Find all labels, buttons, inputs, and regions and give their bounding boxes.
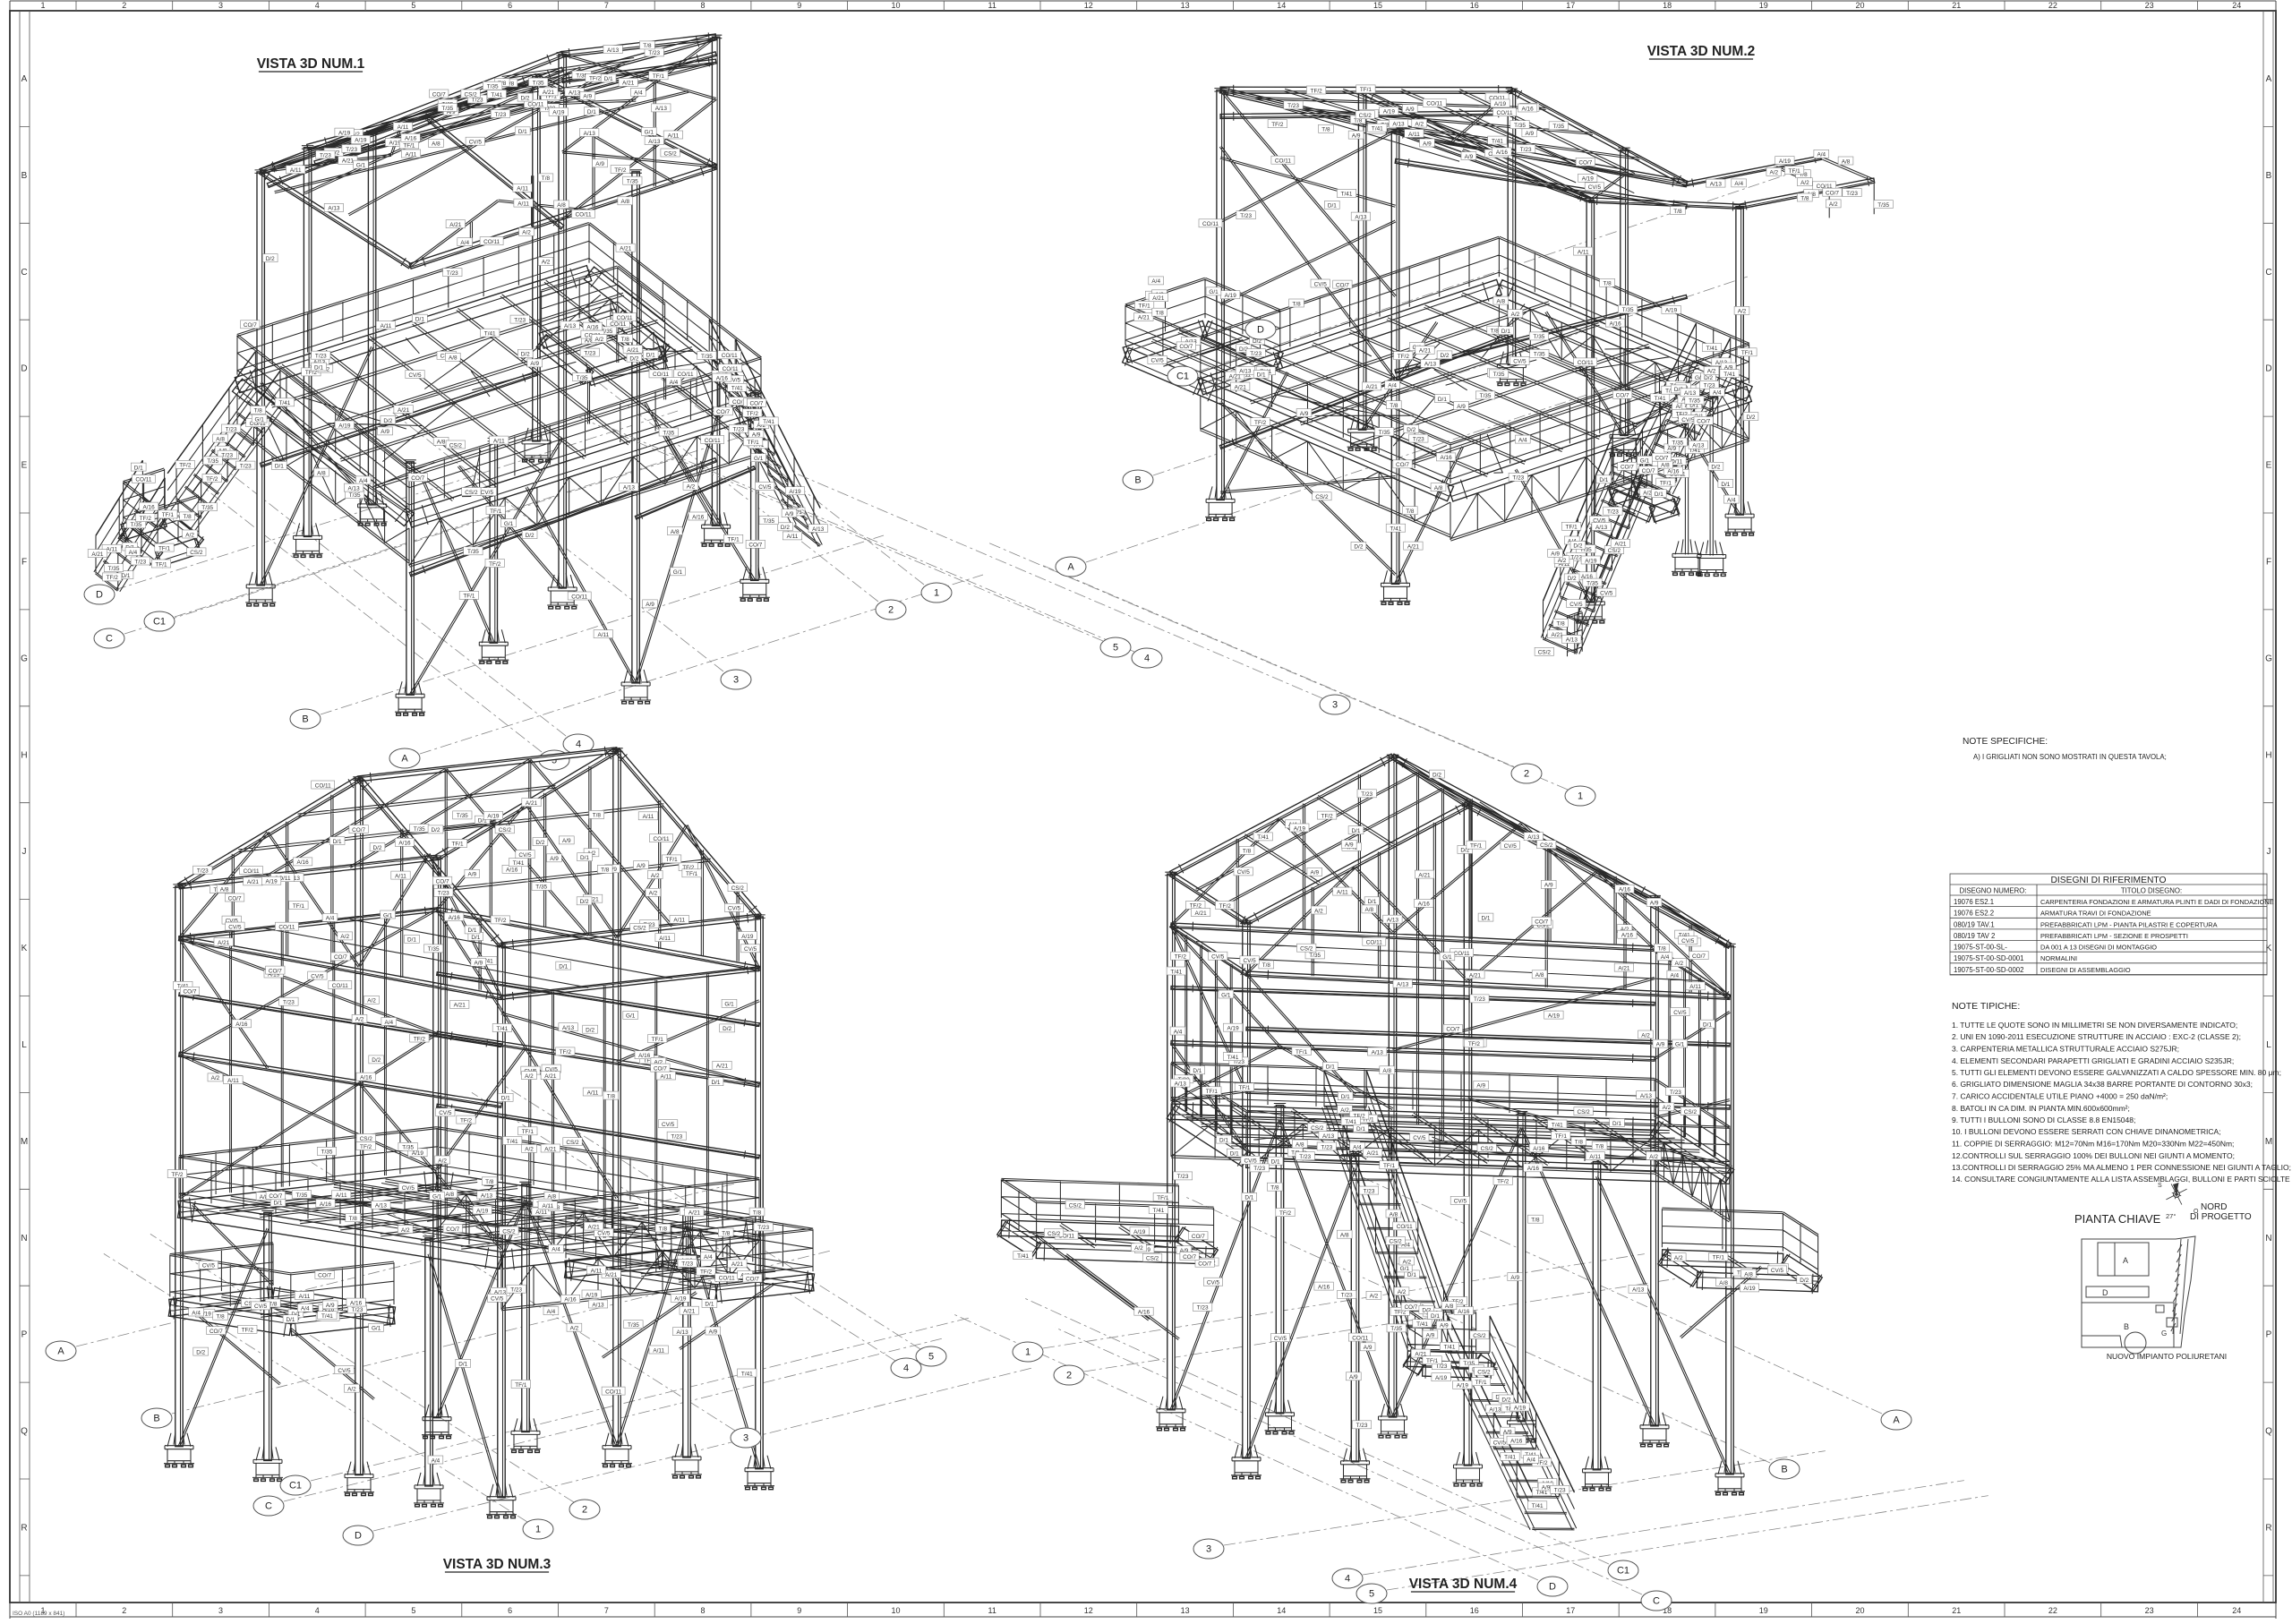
svg-text:CS/2: CS/2	[1538, 650, 1552, 656]
svg-text:A/16: A/16	[1621, 933, 1634, 939]
svg-text:T/8: T/8	[607, 1093, 616, 1099]
svg-text:A/8: A/8	[557, 202, 566, 209]
svg-text:A/2: A/2	[347, 1387, 356, 1393]
svg-text:7: 7	[604, 1, 609, 10]
svg-text:CS/2: CS/2	[566, 1140, 579, 1146]
svg-text:A: A	[21, 74, 28, 84]
svg-text:T/23: T/23	[1670, 1090, 1681, 1096]
svg-text:D/2: D/2	[1407, 427, 1415, 433]
svg-text:A/8: A/8	[317, 470, 326, 476]
svg-text:A/2: A/2	[1415, 121, 1424, 127]
svg-text:A/21: A/21	[398, 407, 410, 414]
svg-text:B: B	[2266, 171, 2272, 181]
svg-text:D/2: D/2	[586, 1028, 594, 1034]
svg-text:TF/2: TF/2	[140, 516, 152, 522]
svg-text:T/8: T/8	[1603, 281, 1612, 287]
svg-text:CO/11: CO/11	[1352, 1335, 1368, 1341]
svg-text:A/13: A/13	[1566, 637, 1578, 644]
svg-text:T/8: T/8	[183, 514, 192, 520]
svg-text:D/1: D/1	[501, 1096, 510, 1102]
svg-text:D/1: D/1	[407, 937, 416, 944]
svg-text:A/13: A/13	[1595, 525, 1608, 531]
svg-text:TF/1: TF/1	[293, 903, 305, 910]
svg-text:T/23: T/23	[315, 354, 327, 360]
svg-text:A/13: A/13	[812, 526, 825, 533]
svg-text:A/9: A/9	[1423, 141, 1432, 147]
svg-text:A/21: A/21	[218, 940, 230, 946]
svg-text:H: H	[2265, 750, 2271, 760]
svg-text:E: E	[2266, 461, 2272, 471]
svg-text:CS/2: CS/2	[190, 550, 203, 556]
svg-text:G/1: G/1	[724, 1002, 734, 1008]
svg-text:CO/7: CO/7	[1446, 1027, 1459, 1033]
svg-text:2: 2	[582, 1505, 587, 1516]
svg-text:D/2: D/2	[432, 827, 440, 833]
svg-text:A/16: A/16	[1441, 455, 1453, 461]
svg-text:A/9: A/9	[1476, 1083, 1485, 1090]
svg-text:T/23: T/23	[1607, 509, 1619, 516]
svg-text:A/8: A/8	[1365, 907, 1374, 913]
svg-text:24: 24	[2232, 1, 2241, 10]
svg-text:5: 5	[411, 1, 415, 10]
svg-text:TF/2: TF/2	[700, 1269, 713, 1276]
svg-text:A: A	[2123, 1256, 2128, 1265]
svg-text:A/19: A/19	[1585, 558, 1597, 564]
svg-text:J: J	[2267, 847, 2271, 857]
svg-text:D/2: D/2	[1800, 1278, 1809, 1284]
svg-text:19075-ST-00-SD-0002: 19075-ST-00-SD-0002	[1954, 966, 2023, 974]
svg-text:CV/5: CV/5	[1569, 602, 1583, 608]
svg-text:A/21: A/21	[1195, 910, 1208, 917]
svg-text:A/2: A/2	[1403, 1259, 1412, 1265]
svg-text:2: 2	[1066, 1371, 1072, 1381]
svg-text:A/8: A/8	[1382, 1068, 1391, 1074]
svg-text:A/9: A/9	[326, 1303, 335, 1309]
svg-text:D: D	[2265, 364, 2271, 374]
svg-text:A/2: A/2	[1663, 1105, 1672, 1111]
svg-text:CO/11: CO/11	[654, 836, 670, 842]
svg-text:A/19: A/19	[412, 1150, 424, 1157]
svg-text:M: M	[21, 1137, 28, 1147]
svg-text:4: 4	[315, 1606, 320, 1615]
svg-text:A/2: A/2	[522, 230, 531, 236]
svg-text:T/8: T/8	[601, 868, 610, 874]
svg-text:A/13: A/13	[375, 1203, 388, 1209]
svg-text:ARMATURA TRAVI DI FONDAZIONE: ARMATURA TRAVI DI FONDAZIONE	[2040, 910, 2151, 918]
svg-text:TF/2: TF/2	[179, 463, 192, 469]
svg-text:T/23: T/23	[1321, 1144, 1332, 1150]
svg-text:A/11: A/11	[406, 151, 417, 158]
svg-text:T/8: T/8	[542, 175, 551, 182]
svg-text:A/4: A/4	[1671, 972, 1680, 979]
svg-text:CV/5: CV/5	[1771, 1268, 1784, 1274]
svg-text:CS/2: CS/2	[633, 926, 646, 932]
svg-text:T/35: T/35	[467, 549, 479, 555]
svg-text:T/23: T/23	[1299, 1154, 1311, 1160]
svg-text:CV/5: CV/5	[1513, 359, 1527, 365]
svg-text:A/11: A/11	[517, 201, 529, 207]
svg-text:TF/1: TF/1	[666, 857, 679, 863]
svg-text:CS/2: CS/2	[663, 150, 677, 157]
svg-text:T/8: T/8	[722, 1230, 731, 1236]
svg-text:TF/2: TF/2	[360, 1144, 372, 1150]
svg-text:D/2: D/2	[1501, 1397, 1510, 1403]
svg-text:T/35: T/35	[1622, 307, 1634, 313]
svg-text:D/2: D/2	[1704, 375, 1713, 381]
svg-text:14: 14	[1277, 1606, 1286, 1615]
svg-text:17: 17	[1566, 1, 1575, 10]
svg-text:A/11: A/11	[653, 1347, 664, 1354]
svg-text:A/2: A/2	[687, 484, 696, 491]
svg-text:T/23: T/23	[648, 50, 660, 56]
svg-text:11. COPPIE DI SERRAGGIO: M12=7: 11. COPPIE DI SERRAGGIO: M12=70Nm M16=17…	[1952, 1140, 2234, 1149]
svg-text:A/9: A/9	[709, 1329, 718, 1335]
svg-text:6. GRIGLIATO DIMENSIONE MAGLIA: 6. GRIGLIATO DIMENSIONE MAGLIA 34x38 BAR…	[1952, 1080, 2253, 1089]
svg-text:CO/11: CO/11	[527, 102, 543, 108]
svg-text:S: S	[2158, 1183, 2162, 1189]
svg-text:A/2: A/2	[525, 1147, 534, 1153]
svg-text:A/11: A/11	[643, 814, 654, 820]
svg-text:G/1: G/1	[626, 1013, 636, 1020]
svg-text:A/21: A/21	[688, 1210, 701, 1217]
svg-text:A/11: A/11	[668, 132, 680, 139]
svg-text:T/23: T/23	[495, 112, 507, 118]
svg-text:T/41: T/41	[731, 386, 743, 392]
svg-text:T/41: T/41	[1341, 192, 1353, 198]
svg-text:A/11: A/11	[660, 1073, 671, 1080]
svg-text:A/9: A/9	[1349, 1374, 1358, 1380]
svg-text:D/1: D/1	[1482, 915, 1491, 921]
svg-text:T/41: T/41	[763, 419, 774, 425]
svg-text:T/8: T/8	[1321, 127, 1330, 133]
svg-text:CO/7: CO/7	[1616, 393, 1629, 399]
svg-text:A/19: A/19	[586, 1292, 598, 1298]
svg-text:3. CARPENTERIA METALLICA STRUT: 3. CARPENTERIA METALLICA STRUTTURALE ACC…	[1952, 1045, 2179, 1054]
svg-text:G: G	[21, 654, 28, 663]
svg-text:C1: C1	[289, 1481, 302, 1492]
svg-text:A/11: A/11	[1578, 249, 1589, 255]
svg-text:23: 23	[2145, 1, 2154, 10]
svg-text:A/21: A/21	[1366, 384, 1379, 390]
svg-text:T/41: T/41	[497, 1026, 509, 1032]
svg-text:DA 001 A 13 DISEGNI DI MONTAGG: DA 001 A 13 DISEGNI DI MONTAGGIO	[2040, 944, 2157, 952]
svg-text:TF/2: TF/2	[494, 918, 507, 924]
svg-text:T/41: T/41	[1552, 1122, 1563, 1128]
svg-text:A/11: A/11	[299, 1294, 311, 1300]
svg-text:19075-ST-00-SD-0001: 19075-ST-00-SD-0001	[1954, 954, 2023, 962]
svg-text:T/23: T/23	[1197, 1305, 1209, 1312]
svg-text:CO/7: CO/7	[1179, 344, 1193, 350]
svg-text:VISTA 3D NUM.1: VISTA 3D NUM.1	[257, 56, 365, 72]
svg-text:A/11: A/11	[535, 1209, 547, 1216]
svg-text:DISEGNI DI ASSEMBLAGGIO: DISEGNI DI ASSEMBLAGGIO	[2040, 966, 2131, 974]
svg-text:CO/11: CO/11	[723, 366, 739, 372]
svg-text:3: 3	[743, 1433, 748, 1444]
svg-text:CS/2: CS/2	[465, 490, 478, 496]
svg-text:A/13: A/13	[1489, 1406, 1501, 1413]
svg-text:CO/11: CO/11	[1397, 1224, 1413, 1230]
svg-text:T/35: T/35	[1586, 580, 1598, 586]
svg-text:T/23: T/23	[1240, 213, 1252, 219]
svg-text:T/23: T/23	[1520, 147, 1532, 153]
svg-text:TF/2: TF/2	[589, 76, 602, 82]
svg-text:CV/5: CV/5	[597, 1231, 611, 1237]
svg-text:A/16: A/16	[1522, 106, 1535, 112]
svg-text:A/11: A/11	[659, 936, 671, 942]
svg-text:10. I BULLONI DEVONO ESSERE SE: 10. I BULLONI DEVONO ESSERE SERRATI CON …	[1952, 1127, 2221, 1136]
svg-text:T/23: T/23	[510, 1287, 522, 1294]
svg-text:8: 8	[700, 1606, 705, 1615]
svg-text:A/2: A/2	[1643, 491, 1652, 497]
svg-text:CV/5: CV/5	[439, 1110, 452, 1116]
svg-text:TF/2: TF/2	[614, 167, 627, 174]
svg-text:D/1: D/1	[587, 109, 596, 115]
svg-text:A/2: A/2	[1800, 180, 1809, 186]
svg-text:T/41: T/41	[1372, 126, 1383, 132]
svg-text:A/8: A/8	[1535, 972, 1544, 979]
svg-text:3: 3	[1206, 1544, 1211, 1555]
svg-text:A/13: A/13	[1397, 982, 1409, 988]
svg-text:A/2: A/2	[1340, 1107, 1349, 1114]
svg-text:A/19: A/19	[1294, 825, 1306, 832]
svg-text:D/2: D/2	[781, 525, 790, 531]
svg-text:D/2: D/2	[1747, 415, 1756, 421]
svg-text:CV/5: CV/5	[1504, 843, 1518, 850]
svg-text:6: 6	[508, 1, 512, 10]
svg-text:D/2: D/2	[1573, 543, 1582, 550]
svg-text:CO/7: CO/7	[210, 1329, 223, 1335]
svg-text:A/4: A/4	[1174, 1029, 1183, 1035]
svg-text:A/9: A/9	[1551, 551, 1560, 558]
svg-text:T/8: T/8	[643, 43, 652, 49]
svg-text:D/1: D/1	[646, 353, 655, 359]
svg-text:C1: C1	[1176, 372, 1189, 382]
svg-text:A/13: A/13	[564, 323, 577, 329]
svg-text:D/1: D/1	[286, 1317, 295, 1323]
svg-text:CV/5: CV/5	[1237, 869, 1251, 876]
svg-text:TF/1: TF/1	[1789, 168, 1801, 175]
svg-text:TF/1: TF/1	[1713, 1255, 1725, 1261]
svg-text:A/21: A/21	[91, 551, 104, 558]
svg-text:A/16: A/16	[692, 514, 705, 520]
svg-text:A: A	[57, 1346, 64, 1357]
svg-text:A/2: A/2	[542, 260, 551, 266]
svg-text:CS/2: CS/2	[1477, 1370, 1491, 1376]
svg-text:A/11: A/11	[381, 323, 392, 329]
svg-text:A/8: A/8	[1390, 1211, 1398, 1218]
svg-text:A/8: A/8	[1445, 1303, 1454, 1310]
svg-text:C: C	[21, 268, 27, 278]
svg-text:14: 14	[1277, 1, 1286, 10]
svg-text:T/41: T/41	[491, 92, 502, 98]
svg-text:A/8: A/8	[1497, 298, 1506, 304]
svg-text:A/21: A/21	[544, 1146, 557, 1152]
svg-text:G/1: G/1	[1640, 458, 1650, 465]
svg-text:T/35: T/35	[535, 885, 547, 891]
svg-text:A/11: A/11	[1408, 132, 1420, 138]
svg-text:CO/11: CO/11	[483, 239, 500, 245]
svg-text:K: K	[21, 944, 28, 953]
svg-text:T/23: T/23	[1287, 103, 1299, 109]
svg-text:T/41: T/41	[279, 400, 291, 406]
svg-text:2: 2	[122, 1606, 126, 1615]
svg-text:D/1: D/1	[1219, 1137, 1228, 1143]
svg-text:TF/2: TF/2	[1497, 1179, 1509, 1185]
svg-text:A/2: A/2	[211, 1075, 220, 1081]
svg-text:CV/5: CV/5	[1681, 938, 1695, 944]
svg-text:A/21: A/21	[716, 1064, 729, 1070]
svg-text:A/8: A/8	[446, 1192, 455, 1198]
svg-text:T/23: T/23	[1341, 1293, 1353, 1299]
svg-text:CV/5: CV/5	[1243, 958, 1256, 964]
svg-text:T/41: T/41	[1532, 1503, 1544, 1509]
svg-text:10: 10	[891, 1606, 900, 1615]
svg-text:3: 3	[218, 1, 223, 10]
svg-text:T/8: T/8	[1270, 1185, 1279, 1192]
svg-text:A/9: A/9	[646, 602, 654, 608]
svg-text:A/9: A/9	[550, 856, 559, 862]
svg-text:A: A	[1893, 1415, 1900, 1426]
svg-text:T/35: T/35	[1877, 202, 1889, 209]
svg-text:B: B	[1134, 475, 1141, 486]
svg-text:D/1: D/1	[712, 1080, 721, 1086]
svg-text:A/11: A/11	[106, 547, 117, 553]
svg-text:A/2: A/2	[401, 1227, 410, 1234]
svg-text:D/2: D/2	[521, 95, 530, 101]
svg-text:A/2: A/2	[1738, 309, 1747, 315]
svg-text:A/4: A/4	[547, 1309, 556, 1315]
svg-text:G/1: G/1	[1442, 954, 1452, 961]
svg-text:A/8: A/8	[621, 199, 630, 205]
svg-text:A/11: A/11	[1337, 889, 1348, 895]
svg-text:P: P	[21, 1330, 28, 1340]
svg-text:A/21: A/21	[731, 1261, 744, 1268]
svg-text:T/8: T/8	[1531, 1218, 1540, 1224]
svg-text:A/8: A/8	[1661, 462, 1670, 468]
svg-text:A/4: A/4	[326, 916, 335, 922]
svg-text:T/41: T/41	[1416, 1321, 1428, 1328]
svg-text:G/1: G/1	[372, 1326, 381, 1332]
svg-text:NOTE TIPICHE:: NOTE TIPICHE:	[1952, 1001, 2020, 1012]
svg-text:A/4: A/4	[460, 240, 469, 246]
svg-text:T/35: T/35	[1689, 398, 1700, 405]
svg-text:CS/2: CS/2	[1684, 1109, 1698, 1115]
svg-text:A/16: A/16	[716, 375, 729, 381]
svg-text:CS/2: CS/2	[1608, 548, 1621, 554]
svg-text:A/4: A/4	[1713, 390, 1722, 397]
svg-text:A/8: A/8	[1744, 1271, 1753, 1278]
svg-text:T/35: T/35	[201, 505, 213, 511]
svg-text:T/35: T/35	[349, 492, 361, 499]
svg-text:A/13: A/13	[1692, 443, 1705, 449]
svg-text:D/2: D/2	[521, 352, 530, 358]
svg-text:23: 23	[2145, 1606, 2154, 1615]
svg-text:D/2: D/2	[1441, 353, 1450, 359]
svg-text:16: 16	[1470, 1, 1479, 10]
svg-text:TF/2: TF/2	[1271, 122, 1284, 128]
svg-text:T/23: T/23	[1177, 1174, 1189, 1180]
svg-text:A/19: A/19	[1457, 1383, 1469, 1389]
svg-text:TF/2: TF/2	[1279, 1210, 1292, 1217]
svg-text:A/16: A/16	[1667, 469, 1680, 475]
svg-text:A/11: A/11	[597, 632, 609, 638]
svg-text:27°: 27°	[2166, 1212, 2176, 1220]
svg-text:CO/7: CO/7	[1655, 456, 1669, 462]
svg-text:G/1: G/1	[255, 416, 265, 423]
svg-text:CO/11: CO/11	[1275, 158, 1291, 165]
svg-text:A/13: A/13	[1632, 1287, 1645, 1294]
svg-text:T/41: T/41	[1227, 1055, 1239, 1061]
svg-text:D/1: D/1	[1612, 1121, 1621, 1127]
svg-text:5: 5	[1369, 1589, 1374, 1600]
svg-text:T/41: T/41	[1257, 834, 1269, 841]
svg-text:A/21: A/21	[1552, 632, 1564, 638]
svg-text:A/21: A/21	[622, 81, 635, 87]
svg-text:A/13: A/13	[623, 485, 636, 491]
svg-text:A/13: A/13	[1392, 122, 1405, 128]
svg-text:D/2: D/2	[580, 899, 589, 905]
svg-text:CO/11: CO/11	[332, 983, 348, 989]
svg-text:T/23: T/23	[226, 426, 237, 432]
svg-text:NUOVO IMPIANTO POLIURETANI: NUOVO IMPIANTO POLIURETANI	[2107, 1352, 2227, 1361]
svg-text:4: 4	[315, 1, 320, 10]
svg-text:A/21: A/21	[1367, 1150, 1380, 1157]
svg-text:T/23: T/23	[447, 270, 458, 277]
svg-text:A/21: A/21	[1614, 542, 1627, 548]
svg-text:A/2: A/2	[355, 1017, 364, 1023]
svg-text:A/9: A/9	[1656, 1042, 1665, 1048]
svg-text:CO/7: CO/7	[1826, 191, 1839, 197]
svg-text:A/2: A/2	[1707, 369, 1716, 375]
svg-text:TF/1: TF/1	[155, 561, 167, 568]
svg-text:T/35: T/35	[108, 566, 120, 572]
svg-text:D/1: D/1	[1655, 491, 1663, 498]
svg-text:A/21: A/21	[1469, 972, 1482, 979]
svg-text:A/9: A/9	[1542, 1484, 1551, 1491]
svg-text:D/1: D/1	[1721, 482, 1730, 488]
svg-text:8. BATOLI IN CA DIM. IN PIANTA: 8. BATOLI IN CA DIM. IN PIANTA MIN.600x6…	[1952, 1104, 2130, 1113]
svg-text:A/13: A/13	[1372, 1049, 1384, 1056]
svg-text:A/9: A/9	[562, 838, 571, 844]
svg-text:CO/7: CO/7	[1336, 282, 1349, 288]
svg-text:A/9: A/9	[1426, 1332, 1435, 1338]
svg-text:CV/5: CV/5	[518, 852, 532, 859]
svg-text:15: 15	[1373, 1, 1382, 10]
svg-text:T/8: T/8	[1491, 329, 1500, 335]
svg-text:T/23: T/23	[1474, 996, 1485, 1003]
svg-text:D/1: D/1	[1599, 477, 1608, 483]
svg-text:T/8: T/8	[1262, 962, 1271, 969]
svg-text:A/16: A/16	[320, 1201, 332, 1208]
svg-text:A/21: A/21	[449, 222, 462, 228]
svg-text:A/2: A/2	[651, 873, 660, 879]
svg-text:A/13: A/13	[1710, 181, 1723, 187]
svg-text:PIANTA CHIAVE: PIANTA CHIAVE	[2074, 1212, 2161, 1226]
svg-text:A/2: A/2	[367, 998, 376, 1004]
svg-text:CV/5: CV/5	[228, 924, 242, 930]
svg-text:A/11: A/11	[493, 438, 505, 444]
svg-text:A/2: A/2	[340, 934, 349, 940]
svg-text:CV/5: CV/5	[1600, 590, 1613, 596]
svg-text:T/35: T/35	[402, 1145, 414, 1151]
svg-text:D/2: D/2	[373, 845, 382, 851]
svg-text:A/19: A/19	[789, 489, 801, 495]
svg-text:TF/2: TF/2	[489, 561, 501, 568]
svg-text:A/4: A/4	[1527, 1457, 1535, 1464]
svg-text:G/1: G/1	[356, 163, 366, 169]
svg-text:TF/2: TF/2	[1321, 813, 1334, 819]
svg-text:CO/7: CO/7	[352, 827, 365, 833]
